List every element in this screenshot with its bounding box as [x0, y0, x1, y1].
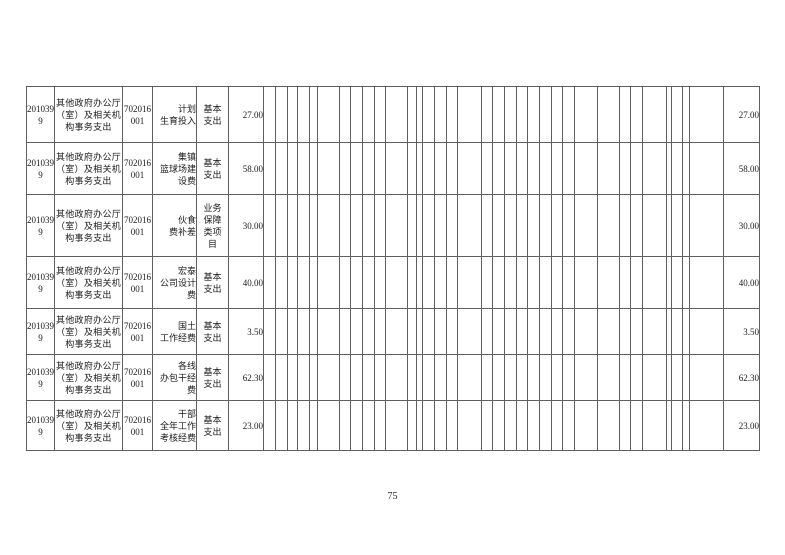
empty-cell — [435, 257, 447, 309]
empty-cell — [672, 87, 683, 143]
empty-cell — [458, 401, 482, 451]
empty-cell — [690, 401, 724, 451]
empty-cell — [447, 195, 458, 257]
empty-cell — [631, 401, 643, 451]
expense-type-cell: 基本 支出 — [197, 143, 229, 195]
empty-cell — [631, 195, 643, 257]
empty-cell — [482, 195, 493, 257]
empty-cell — [552, 355, 563, 401]
empty-cell — [528, 143, 540, 195]
table-row: 201039 9其他政府办公厅 （室）及相关机 构事务支出702016 001宏… — [27, 257, 760, 309]
empty-cell — [288, 309, 298, 355]
amount-total-cell: 23.00 — [724, 401, 760, 451]
budget-table: 201039 9其他政府办公厅 （室）及相关机 构事务支出702016 001计… — [26, 86, 760, 451]
amount-cell: 58.00 — [229, 143, 264, 195]
empty-cell — [575, 401, 598, 451]
empty-cell — [340, 195, 351, 257]
empty-cell — [264, 87, 276, 143]
empty-cell — [363, 309, 375, 355]
expense-type-cell: 基本 支出 — [197, 401, 229, 451]
func-code-cell: 201039 9 — [27, 257, 55, 309]
empty-cell — [447, 87, 458, 143]
empty-cell — [552, 143, 563, 195]
expense-type-cell: 业务 保障 类项 目 — [197, 195, 229, 257]
empty-cell — [528, 195, 540, 257]
empty-cell — [288, 355, 298, 401]
empty-cell — [552, 309, 563, 355]
empty-cell — [276, 355, 288, 401]
empty-cell — [310, 87, 318, 143]
empty-cell — [672, 257, 683, 309]
empty-cell — [620, 309, 631, 355]
func-code-cell: 201039 9 — [27, 309, 55, 355]
empty-cell — [552, 257, 563, 309]
empty-cell — [318, 309, 340, 355]
empty-cell — [435, 195, 447, 257]
table-row: 201039 9其他政府办公厅 （室）及相关机 构事务支出702016 001国… — [27, 309, 760, 355]
empty-cell — [493, 309, 505, 355]
func-name-cell: 其他政府办公厅 （室）及相关机 构事务支出 — [55, 143, 123, 195]
empty-cell — [683, 195, 690, 257]
empty-cell — [482, 355, 493, 401]
empty-cell — [264, 257, 276, 309]
empty-cell — [458, 143, 482, 195]
empty-cell — [408, 309, 417, 355]
empty-cell — [482, 87, 493, 143]
empty-cell — [386, 401, 408, 451]
empty-cell — [435, 87, 447, 143]
empty-cell — [276, 401, 288, 451]
empty-cell — [310, 143, 318, 195]
func-code-cell: 201039 9 — [27, 87, 55, 143]
func-name-cell: 其他政府办公厅 （室）及相关机 构事务支出 — [55, 309, 123, 355]
empty-cell — [690, 87, 724, 143]
empty-cell — [298, 143, 310, 195]
empty-cell — [458, 195, 482, 257]
empty-cell — [340, 87, 351, 143]
project-name-cell: 伙食 费补差 — [153, 195, 197, 257]
empty-cell — [318, 143, 340, 195]
empty-cell — [563, 401, 575, 451]
empty-cell — [351, 309, 363, 355]
empty-cell — [423, 355, 435, 401]
empty-cell — [598, 309, 620, 355]
amount-cell: 27.00 — [229, 87, 264, 143]
empty-cell — [517, 195, 528, 257]
empty-cell — [340, 401, 351, 451]
econ-code-cell: 702016 001 — [123, 87, 153, 143]
empty-cell — [408, 355, 417, 401]
empty-cell — [563, 309, 575, 355]
empty-cell — [598, 143, 620, 195]
empty-cell — [620, 87, 631, 143]
empty-cell — [435, 143, 447, 195]
empty-cell — [363, 87, 375, 143]
empty-cell — [528, 87, 540, 143]
empty-cell — [631, 87, 643, 143]
func-name-cell: 其他政府办公厅 （室）及相关机 构事务支出 — [55, 401, 123, 451]
empty-cell — [505, 143, 517, 195]
empty-cell — [505, 87, 517, 143]
empty-cell — [408, 143, 417, 195]
empty-cell — [517, 257, 528, 309]
empty-cell — [423, 87, 435, 143]
empty-cell — [505, 401, 517, 451]
empty-cell — [351, 355, 363, 401]
empty-cell — [598, 195, 620, 257]
empty-cell — [340, 309, 351, 355]
econ-code-cell: 702016 001 — [123, 355, 153, 401]
empty-cell — [447, 355, 458, 401]
empty-cell — [683, 143, 690, 195]
empty-cell — [318, 401, 340, 451]
empty-cell — [517, 87, 528, 143]
empty-cell — [264, 309, 276, 355]
empty-cell — [264, 195, 276, 257]
empty-cell — [363, 401, 375, 451]
empty-cell — [505, 257, 517, 309]
empty-cell — [631, 309, 643, 355]
empty-cell — [318, 195, 340, 257]
empty-cell — [298, 401, 310, 451]
empty-cell — [447, 309, 458, 355]
empty-cell — [351, 143, 363, 195]
empty-cell — [690, 355, 724, 401]
empty-cell — [375, 257, 386, 309]
func-name-cell: 其他政府办公厅 （室）及相关机 构事务支出 — [55, 355, 123, 401]
empty-cell — [423, 309, 435, 355]
empty-cell — [528, 309, 540, 355]
expense-type-cell: 基本 支出 — [197, 309, 229, 355]
empty-cell — [505, 355, 517, 401]
empty-cell — [493, 355, 505, 401]
empty-cell — [264, 355, 276, 401]
empty-cell — [386, 355, 408, 401]
amount-total-cell: 27.00 — [724, 87, 760, 143]
empty-cell — [340, 143, 351, 195]
func-name-cell: 其他政府办公厅 （室）及相关机 构事务支出 — [55, 195, 123, 257]
empty-cell — [493, 257, 505, 309]
empty-cell — [517, 309, 528, 355]
empty-cell — [276, 87, 288, 143]
table-row: 201039 9其他政府办公厅 （室）及相关机 构事务支出702016 001计… — [27, 87, 760, 143]
expense-type-cell: 基本 支出 — [197, 355, 229, 401]
func-name-cell: 其他政府办公厅 （室）及相关机 构事务支出 — [55, 257, 123, 309]
empty-cell — [363, 143, 375, 195]
empty-cell — [672, 143, 683, 195]
empty-cell — [386, 309, 408, 355]
empty-cell — [552, 87, 563, 143]
empty-cell — [351, 257, 363, 309]
table-row: 201039 9其他政府办公厅 （室）及相关机 构事务支出702016 001集… — [27, 143, 760, 195]
table-row: 201039 9其他政府办公厅 （室）及相关机 构事务支出702016 001干… — [27, 401, 760, 451]
empty-cell — [375, 87, 386, 143]
empty-cell — [482, 309, 493, 355]
empty-cell — [563, 195, 575, 257]
empty-cell — [288, 195, 298, 257]
empty-cell — [575, 143, 598, 195]
empty-cell — [672, 195, 683, 257]
empty-cell — [493, 195, 505, 257]
empty-cell — [375, 195, 386, 257]
empty-cell — [264, 401, 276, 451]
empty-cell — [351, 87, 363, 143]
project-name-cell: 计划 生育投入 — [153, 87, 197, 143]
empty-cell — [540, 355, 552, 401]
empty-cell — [631, 355, 643, 401]
project-name-cell: 干部 全年工作 考核经费 — [153, 401, 197, 451]
empty-cell — [318, 355, 340, 401]
empty-cell — [552, 195, 563, 257]
empty-cell — [363, 355, 375, 401]
empty-cell — [482, 401, 493, 451]
amount-total-cell: 62.30 — [724, 355, 760, 401]
empty-cell — [310, 355, 318, 401]
amount-total-cell: 58.00 — [724, 143, 760, 195]
empty-cell — [340, 355, 351, 401]
project-name-cell: 集镇 篮球场建 设费 — [153, 143, 197, 195]
empty-cell — [575, 355, 598, 401]
empty-cell — [423, 195, 435, 257]
empty-cell — [264, 143, 276, 195]
empty-cell — [408, 257, 417, 309]
empty-cell — [683, 87, 690, 143]
empty-cell — [482, 143, 493, 195]
empty-cell — [563, 257, 575, 309]
project-name-cell: 宏泰 公司设计 费 — [153, 257, 197, 309]
func-name-cell: 其他政府办公厅 （室）及相关机 构事务支出 — [55, 87, 123, 143]
func-code-cell: 201039 9 — [27, 195, 55, 257]
empty-cell — [363, 257, 375, 309]
empty-cell — [435, 355, 447, 401]
empty-cell — [375, 401, 386, 451]
empty-cell — [435, 309, 447, 355]
empty-cell — [552, 401, 563, 451]
empty-cell — [683, 257, 690, 309]
empty-cell — [276, 257, 288, 309]
empty-cell — [620, 355, 631, 401]
empty-cell — [598, 257, 620, 309]
empty-cell — [298, 257, 310, 309]
empty-cell — [690, 257, 724, 309]
empty-cell — [458, 355, 482, 401]
empty-cell — [375, 143, 386, 195]
empty-cell — [298, 195, 310, 257]
empty-cell — [643, 257, 667, 309]
project-name-cell: 国土 工作经费 — [153, 309, 197, 355]
amount-total-cell: 40.00 — [724, 257, 760, 309]
amount-cell: 62.30 — [229, 355, 264, 401]
empty-cell — [505, 195, 517, 257]
empty-cell — [672, 355, 683, 401]
empty-cell — [340, 257, 351, 309]
amount-cell: 30.00 — [229, 195, 264, 257]
empty-cell — [643, 309, 667, 355]
empty-cell — [575, 257, 598, 309]
empty-cell — [310, 309, 318, 355]
empty-cell — [620, 195, 631, 257]
empty-cell — [643, 195, 667, 257]
amount-total-cell: 30.00 — [724, 195, 760, 257]
empty-cell — [310, 257, 318, 309]
empty-cell — [643, 87, 667, 143]
empty-cell — [276, 309, 288, 355]
empty-cell — [458, 309, 482, 355]
empty-cell — [375, 309, 386, 355]
empty-cell — [540, 309, 552, 355]
empty-cell — [540, 195, 552, 257]
empty-cell — [447, 401, 458, 451]
empty-cell — [408, 195, 417, 257]
empty-cell — [351, 401, 363, 451]
empty-cell — [540, 401, 552, 451]
empty-cell — [575, 309, 598, 355]
empty-cell — [517, 401, 528, 451]
econ-code-cell: 702016 001 — [123, 143, 153, 195]
empty-cell — [575, 195, 598, 257]
empty-cell — [631, 257, 643, 309]
table-row: 201039 9其他政府办公厅 （室）及相关机 构事务支出702016 001各… — [27, 355, 760, 401]
empty-cell — [598, 87, 620, 143]
empty-cell — [447, 143, 458, 195]
func-code-cell: 201039 9 — [27, 401, 55, 451]
empty-cell — [672, 401, 683, 451]
empty-cell — [683, 401, 690, 451]
empty-cell — [620, 257, 631, 309]
empty-cell — [643, 143, 667, 195]
econ-code-cell: 702016 001 — [123, 401, 153, 451]
empty-cell — [620, 401, 631, 451]
empty-cell — [423, 257, 435, 309]
func-code-cell: 201039 9 — [27, 355, 55, 401]
empty-cell — [288, 87, 298, 143]
empty-cell — [447, 257, 458, 309]
expense-type-cell: 基本 支出 — [197, 257, 229, 309]
amount-cell: 40.00 — [229, 257, 264, 309]
amount-total-cell: 3.50 — [724, 309, 760, 355]
empty-cell — [563, 355, 575, 401]
empty-cell — [563, 143, 575, 195]
empty-cell — [276, 143, 288, 195]
empty-cell — [540, 257, 552, 309]
empty-cell — [386, 257, 408, 309]
empty-cell — [298, 87, 310, 143]
econ-code-cell: 702016 001 — [123, 257, 153, 309]
empty-cell — [408, 401, 417, 451]
empty-cell — [575, 87, 598, 143]
empty-cell — [423, 401, 435, 451]
empty-cell — [435, 401, 447, 451]
empty-cell — [690, 195, 724, 257]
empty-cell — [517, 355, 528, 401]
empty-cell — [310, 401, 318, 451]
empty-cell — [672, 309, 683, 355]
empty-cell — [276, 195, 288, 257]
empty-cell — [528, 401, 540, 451]
empty-cell — [310, 195, 318, 257]
empty-cell — [458, 87, 482, 143]
empty-cell — [598, 401, 620, 451]
amount-cell: 3.50 — [229, 309, 264, 355]
project-name-cell: 各线 办包干经 费 — [153, 355, 197, 401]
empty-cell — [493, 401, 505, 451]
econ-code-cell: 702016 001 — [123, 309, 153, 355]
empty-cell — [517, 143, 528, 195]
amount-cell: 23.00 — [229, 401, 264, 451]
empty-cell — [351, 195, 363, 257]
empty-cell — [288, 143, 298, 195]
empty-cell — [298, 355, 310, 401]
empty-cell — [482, 257, 493, 309]
empty-cell — [363, 195, 375, 257]
empty-cell — [540, 87, 552, 143]
empty-cell — [620, 143, 631, 195]
expense-type-cell: 基本 支出 — [197, 87, 229, 143]
empty-cell — [298, 309, 310, 355]
empty-cell — [683, 309, 690, 355]
empty-cell — [408, 87, 417, 143]
document-page: 201039 9其他政府办公厅 （室）及相关机 构事务支出702016 001计… — [0, 0, 785, 555]
empty-cell — [563, 87, 575, 143]
page-number: 75 — [0, 491, 785, 502]
empty-cell — [540, 143, 552, 195]
empty-cell — [458, 257, 482, 309]
empty-cell — [528, 257, 540, 309]
econ-code-cell: 702016 001 — [123, 195, 153, 257]
empty-cell — [375, 355, 386, 401]
empty-cell — [493, 87, 505, 143]
func-code-cell: 201039 9 — [27, 143, 55, 195]
empty-cell — [631, 143, 643, 195]
empty-cell — [386, 195, 408, 257]
empty-cell — [318, 87, 340, 143]
empty-cell — [643, 401, 667, 451]
empty-cell — [493, 143, 505, 195]
empty-cell — [643, 355, 667, 401]
empty-cell — [288, 257, 298, 309]
empty-cell — [528, 355, 540, 401]
empty-cell — [386, 87, 408, 143]
table-row: 201039 9其他政府办公厅 （室）及相关机 构事务支出702016 001伙… — [27, 195, 760, 257]
empty-cell — [423, 143, 435, 195]
empty-cell — [690, 143, 724, 195]
empty-cell — [690, 309, 724, 355]
empty-cell — [505, 309, 517, 355]
empty-cell — [598, 355, 620, 401]
empty-cell — [318, 257, 340, 309]
empty-cell — [683, 355, 690, 401]
empty-cell — [386, 143, 408, 195]
empty-cell — [288, 401, 298, 451]
